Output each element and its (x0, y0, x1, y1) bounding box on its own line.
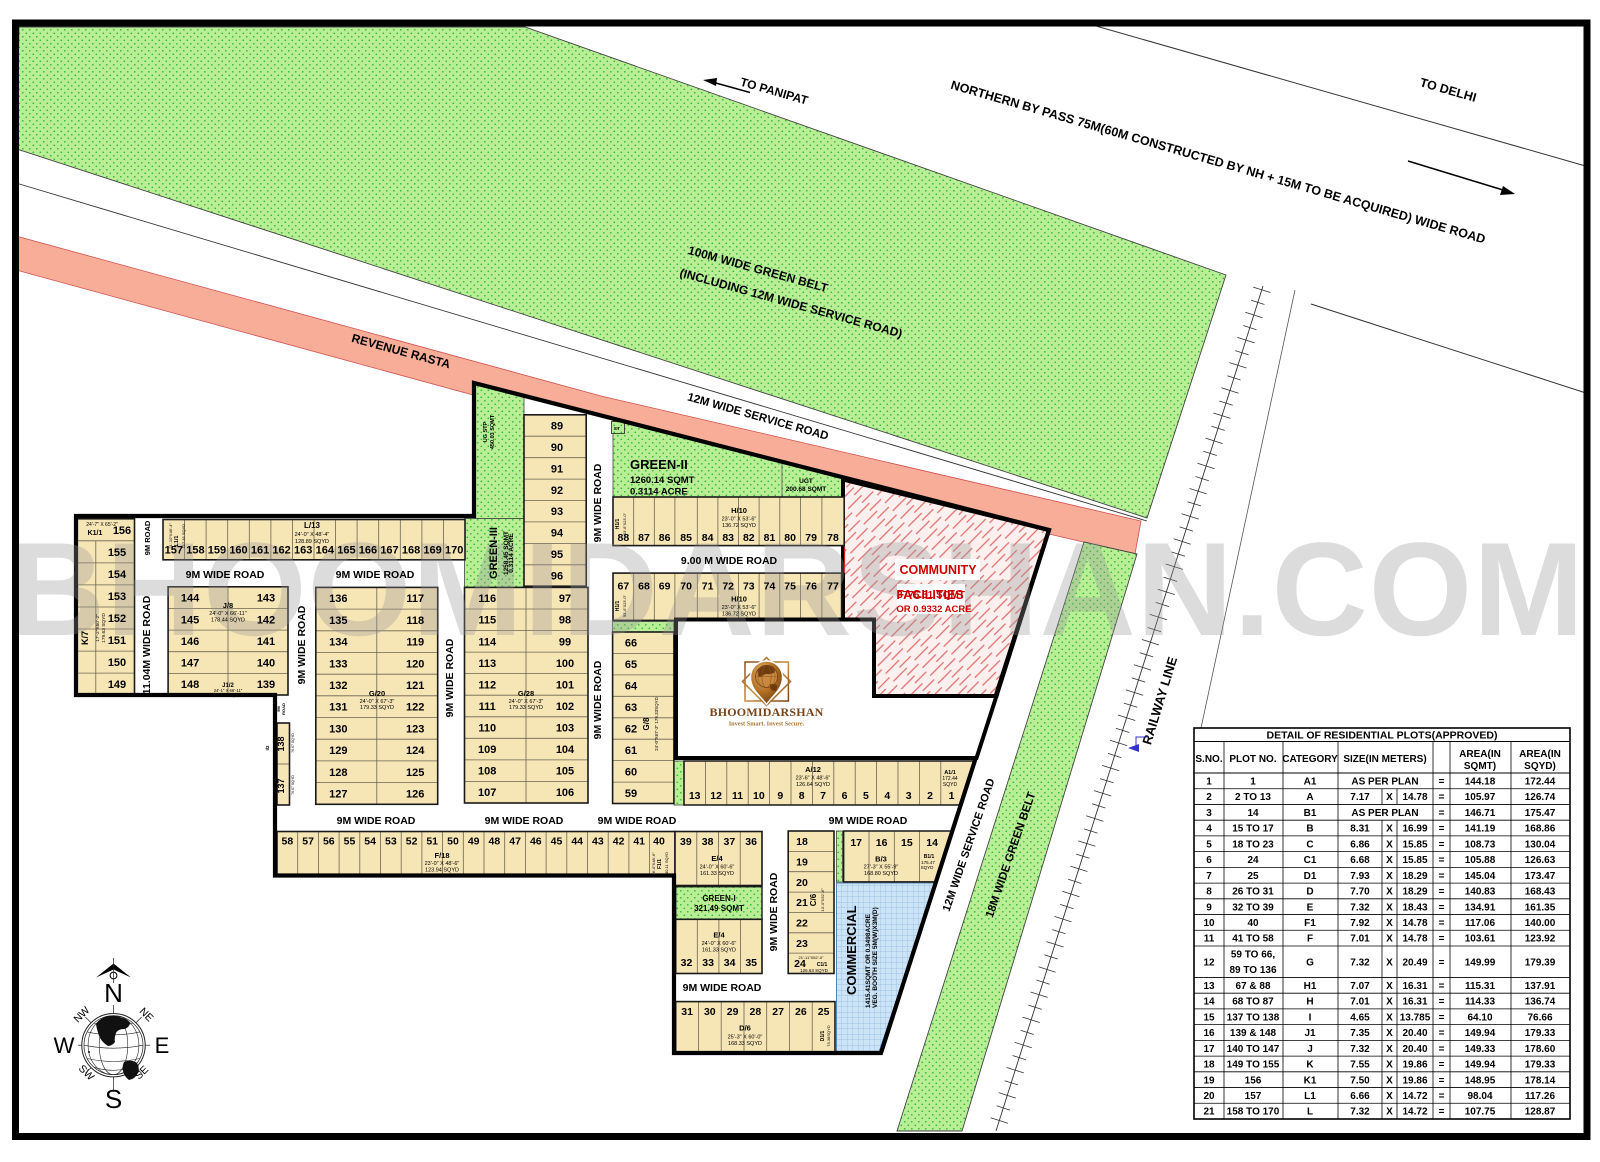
svg-text:144.18: 144.18 (1465, 777, 1496, 788)
svg-text:69: 69 (659, 581, 671, 593)
svg-text:179.06 SQYD: 179.06 SQYD (215, 693, 241, 698)
svg-text:C1: C1 (1304, 855, 1317, 866)
svg-text:115: 115 (478, 615, 496, 627)
svg-text:4.65: 4.65 (1350, 1012, 1370, 1023)
svg-text:ROAD: ROAD (281, 703, 286, 715)
svg-text:X: X (1386, 1060, 1393, 1071)
svg-text:9M WIDE ROAD: 9M WIDE ROAD (186, 569, 265, 581)
svg-text:E: E (1307, 902, 1314, 913)
svg-text:122: 122 (406, 702, 424, 714)
svg-text:81: 81 (764, 532, 776, 544)
svg-text:76.67 SQYD: 76.67 SQYD (291, 775, 295, 795)
svg-text:23'-6" X 48'-6": 23'-6" X 48'-6" (796, 776, 831, 782)
svg-text:X: X (1386, 1012, 1393, 1023)
svg-text:130: 130 (329, 723, 347, 735)
svg-text:32 TO 39: 32 TO 39 (1232, 902, 1274, 913)
svg-text:9M WIDE ROAD: 9M WIDE ROAD (683, 982, 762, 994)
svg-text:OR 0.9332 ACRE: OR 0.9332 ACRE (896, 604, 971, 615)
svg-text:0.3114 ACRE: 0.3114 ACRE (508, 533, 515, 573)
svg-text:131: 131 (329, 702, 347, 714)
svg-text:=: = (1439, 957, 1445, 968)
svg-text:26 TO 31: 26 TO 31 (1232, 887, 1274, 898)
svg-text:72: 72 (722, 581, 734, 593)
svg-text:157: 157 (1245, 1091, 1262, 1102)
svg-text:149.99: 149.99 (1465, 957, 1496, 968)
svg-text:53'-6"X23'-0": 53'-6"X23'-0" (623, 512, 627, 535)
svg-text:168.33 SQYD: 168.33 SQYD (728, 1041, 762, 1047)
svg-text:D/6: D/6 (739, 1024, 751, 1033)
svg-text:14: 14 (1203, 997, 1215, 1008)
svg-text:7.17: 7.17 (1350, 792, 1370, 803)
svg-text:140.83: 140.83 (1465, 887, 1496, 898)
svg-text:129: 129 (329, 745, 347, 757)
svg-text:6.66: 6.66 (1350, 1091, 1370, 1102)
svg-text:145.04: 145.04 (1465, 871, 1496, 882)
svg-text:CATEGORY: CATEGORY (1282, 754, 1338, 765)
svg-text:85: 85 (680, 532, 692, 544)
svg-text:H1/1: H1/1 (615, 601, 621, 612)
svg-text:C/6: C/6 (809, 893, 818, 906)
svg-text:75: 75 (784, 581, 796, 593)
svg-text:8.31: 8.31 (1350, 824, 1370, 835)
svg-text:19: 19 (1203, 1075, 1215, 1086)
svg-text:23'-0" X 48'-6": 23'-0" X 48'-6" (425, 861, 460, 867)
svg-text:132: 132 (329, 680, 347, 692)
svg-text:145: 145 (181, 614, 199, 626)
svg-text:162: 162 (272, 545, 290, 557)
svg-text:78: 78 (827, 532, 839, 544)
svg-text:102: 102 (556, 701, 574, 713)
svg-text:25: 25 (1247, 871, 1259, 882)
svg-text:B1: B1 (1304, 808, 1317, 819)
svg-text:7.01: 7.01 (1350, 997, 1370, 1008)
svg-text:149: 149 (108, 679, 126, 691)
svg-text:36: 36 (745, 836, 757, 848)
svg-text:73.38SQYD: 73.38SQYD (826, 1025, 831, 1046)
svg-text:F1: F1 (1304, 918, 1316, 929)
svg-text:321.49 SQMT: 321.49 SQMT (694, 904, 744, 913)
svg-text:=: = (1439, 918, 1445, 929)
svg-text:X: X (1386, 1107, 1393, 1118)
svg-text:139: 139 (257, 679, 275, 691)
svg-text:91: 91 (551, 463, 563, 475)
svg-text:108: 108 (478, 766, 496, 778)
svg-text:70: 70 (680, 581, 692, 593)
svg-text:J: J (1307, 1044, 1313, 1055)
svg-text:128.89 SQYD: 128.89 SQYD (295, 539, 329, 545)
svg-text:83: 83 (722, 532, 734, 544)
svg-text:X: X (1386, 1044, 1393, 1055)
svg-text:105: 105 (556, 766, 574, 778)
svg-text:G/8: G/8 (642, 717, 651, 730)
svg-text:123.92: 123.92 (1525, 934, 1556, 945)
svg-text:16: 16 (1203, 1028, 1215, 1039)
svg-text:144: 144 (181, 593, 200, 605)
svg-text:PLOT NO.: PLOT NO. (1229, 754, 1276, 765)
svg-text:COMMERCIAL: COMMERCIAL (844, 905, 859, 995)
svg-text:COMMUNITY: COMMUNITY (899, 563, 977, 577)
svg-text:X: X (1386, 981, 1393, 992)
svg-text:68 TO 87: 68 TO 87 (1232, 997, 1274, 1008)
svg-text:98: 98 (559, 615, 571, 627)
svg-text:63: 63 (625, 702, 637, 714)
svg-text:13: 13 (689, 790, 701, 802)
svg-text:11: 11 (732, 790, 743, 802)
svg-text:137 TO 138: 137 TO 138 (1227, 1012, 1280, 1023)
svg-text:17: 17 (850, 837, 862, 849)
svg-text:7.32: 7.32 (1350, 902, 1370, 913)
svg-text:D1: D1 (1304, 871, 1317, 882)
svg-text:2: 2 (1206, 792, 1212, 803)
svg-text:64.10: 64.10 (1467, 1012, 1492, 1023)
svg-text:148: 148 (181, 679, 199, 691)
svg-text:25: 25 (818, 1006, 830, 1018)
svg-text:=: = (1439, 839, 1445, 850)
svg-text:165: 165 (337, 545, 355, 557)
svg-text:149.33: 149.33 (1465, 1044, 1496, 1055)
svg-text:101: 101 (556, 679, 574, 691)
svg-text:111: 111 (479, 701, 496, 713)
svg-text:1: 1 (1206, 777, 1212, 788)
svg-text:I: I (1309, 1012, 1312, 1023)
svg-text:17'-2"X60'-2": 17'-2"X60'-2" (95, 614, 101, 642)
svg-text:104: 104 (556, 744, 575, 756)
svg-text:178.14: 178.14 (1525, 1075, 1556, 1086)
svg-text:9M WIDE ROAD: 9M WIDE ROAD (485, 815, 564, 827)
svg-text:149 TO 155: 149 TO 155 (1227, 1060, 1280, 1071)
svg-text:F: F (1307, 934, 1313, 945)
svg-text:H1/1: H1/1 (615, 519, 621, 530)
svg-text:18: 18 (796, 836, 808, 848)
svg-text:55: 55 (344, 836, 356, 848)
svg-text:53'-6"X23'-0": 53'-6"X23'-0" (623, 594, 627, 617)
svg-text:161.35: 161.35 (1525, 902, 1556, 913)
svg-text:W: W (54, 1033, 75, 1058)
svg-text:45: 45 (551, 836, 563, 848)
svg-text:X: X (1386, 957, 1393, 968)
svg-text:57: 57 (302, 836, 314, 848)
svg-text:114: 114 (478, 636, 497, 648)
svg-text:22: 22 (796, 918, 808, 930)
svg-text:16: 16 (876, 837, 888, 849)
svg-text:X: X (1386, 855, 1393, 866)
svg-text:5: 5 (863, 790, 869, 802)
svg-text:21'-10"X48'-4": 21'-10"X48'-4" (168, 523, 173, 549)
svg-text:115.31: 115.31 (1465, 981, 1495, 992)
svg-text:136: 136 (329, 593, 347, 605)
svg-text:7: 7 (1206, 871, 1212, 882)
svg-text:K1: K1 (1304, 1075, 1317, 1086)
svg-text:GREEN-II: GREEN-II (630, 457, 688, 472)
svg-text:94: 94 (551, 528, 564, 540)
svg-text:19.86: 19.86 (1402, 1075, 1427, 1086)
svg-text:130.04: 130.04 (1525, 839, 1556, 850)
svg-text:96: 96 (551, 571, 563, 583)
svg-text:7: 7 (820, 790, 826, 802)
svg-text:84: 84 (702, 532, 714, 544)
svg-text:24'-0" X 60'-6": 24'-0" X 60'-6" (702, 941, 737, 947)
svg-text:BHOOMIDARSHAN.COM: BHOOMIDARSHAN.COM (9, 516, 1585, 664)
svg-text:19: 19 (796, 857, 808, 869)
svg-text:117.35 SQYD: 117.35 SQYD (181, 524, 186, 548)
svg-text:B/3: B/3 (875, 855, 887, 864)
svg-text:100: 100 (556, 658, 574, 670)
svg-text:E/4: E/4 (711, 854, 723, 863)
svg-text:AREA(IN: AREA(IN (1519, 749, 1561, 760)
svg-text:16.31: 16.31 (1402, 981, 1427, 992)
svg-text:161.33 SQYD: 161.33 SQYD (700, 871, 734, 877)
svg-text:42: 42 (613, 836, 625, 848)
svg-text:108.73: 108.73 (1465, 839, 1496, 850)
svg-text:9M WIDE ROAD: 9M WIDE ROAD (337, 815, 416, 827)
svg-text:116: 116 (478, 593, 496, 605)
svg-text:117.06: 117.06 (1465, 918, 1495, 929)
svg-text:DETAIL OF RESIDENTIAL PLOTS(AP: DETAIL OF RESIDENTIAL PLOTS(APPROVED) (1266, 730, 1497, 742)
svg-text:E/4: E/4 (713, 931, 725, 940)
svg-text:37: 37 (724, 836, 736, 848)
svg-text:18 TO 23: 18 TO 23 (1232, 839, 1274, 850)
svg-text:156: 156 (1245, 1075, 1262, 1086)
svg-text:24'-0" X 48'-4": 24'-0" X 48'-4" (295, 532, 330, 538)
svg-text:X: X (1386, 1075, 1393, 1086)
svg-text:L: L (1307, 1107, 1313, 1118)
svg-text:137.91: 137.91 (1525, 981, 1556, 992)
svg-text:15: 15 (901, 837, 913, 849)
svg-text:=: = (1439, 777, 1445, 788)
svg-text:46: 46 (530, 836, 542, 848)
svg-text:137: 137 (276, 778, 286, 793)
svg-text:79: 79 (805, 532, 817, 544)
svg-text:14.78: 14.78 (1402, 918, 1427, 929)
svg-text:8: 8 (1206, 887, 1212, 898)
svg-text:28: 28 (750, 1006, 762, 1018)
svg-text:24'-0" X 66'-11": 24'-0" X 66'-11" (209, 611, 246, 617)
svg-text:14.78: 14.78 (1402, 792, 1427, 803)
svg-text:450.03 SQMT: 450.03 SQMT (490, 414, 496, 449)
svg-text:149.94: 149.94 (1465, 1028, 1496, 1039)
svg-text:5: 5 (1206, 839, 1212, 850)
svg-text:103.61: 103.61 (1465, 934, 1496, 945)
svg-text:126: 126 (406, 789, 424, 801)
svg-text:24: 24 (1247, 855, 1259, 866)
svg-text:X: X (1386, 934, 1393, 945)
svg-text:2 TO 13: 2 TO 13 (1235, 792, 1271, 803)
svg-text:77: 77 (827, 581, 839, 593)
svg-text:53: 53 (385, 836, 397, 848)
svg-text:31: 31 (681, 1006, 693, 1018)
svg-text:32: 32 (681, 957, 693, 969)
svg-text:I/2: I/2 (265, 745, 270, 751)
svg-text:179.33 SQYD: 179.33 SQYD (509, 705, 543, 711)
svg-text:49: 49 (468, 836, 480, 848)
svg-text:87: 87 (638, 532, 650, 544)
svg-text:179.33: 179.33 (1525, 1028, 1556, 1039)
svg-text:67 & 88: 67 & 88 (1235, 981, 1270, 992)
svg-text:H1: H1 (1304, 981, 1317, 992)
svg-text:107.75: 107.75 (1465, 1107, 1496, 1118)
svg-text:G/28: G/28 (518, 689, 534, 698)
svg-text:117: 117 (406, 593, 424, 605)
svg-text:4: 4 (884, 790, 890, 802)
svg-text:=: = (1439, 808, 1445, 819)
svg-text:B: B (1306, 824, 1313, 835)
svg-text:3: 3 (906, 790, 912, 802)
svg-text:SIZE(IN METERS): SIZE(IN METERS) (1343, 754, 1426, 765)
svg-text:159: 159 (208, 545, 226, 557)
svg-text:J/8: J/8 (223, 601, 233, 610)
svg-text:50: 50 (447, 836, 459, 848)
svg-text:=: = (1439, 887, 1445, 898)
svg-text:40: 40 (1247, 918, 1259, 929)
svg-text:X: X (1386, 902, 1393, 913)
svg-text:SQYD: SQYD (943, 782, 958, 788)
svg-text:L1: L1 (1304, 1091, 1316, 1102)
svg-text:173.47: 173.47 (1525, 871, 1556, 882)
svg-text:K/7: K/7 (80, 631, 90, 645)
svg-text:170: 170 (445, 545, 463, 557)
svg-text:16.31: 16.31 (1402, 997, 1427, 1008)
svg-text:120: 120 (406, 658, 424, 670)
svg-text:K1/1: K1/1 (88, 530, 103, 537)
svg-text:S.NO.: S.NO. (1195, 754, 1222, 765)
svg-text:105.88: 105.88 (1465, 855, 1496, 866)
svg-text:18.29: 18.29 (1402, 887, 1427, 898)
svg-text:158 TO 170: 158 TO 170 (1227, 1107, 1280, 1118)
svg-text:7.50: 7.50 (1350, 1075, 1370, 1086)
svg-text:93: 93 (551, 506, 563, 518)
svg-text:=: = (1439, 1044, 1445, 1055)
svg-text:1260.14 SQMT: 1260.14 SQMT (630, 475, 695, 486)
svg-text:6: 6 (1206, 855, 1212, 866)
svg-text:135: 135 (329, 615, 347, 627)
svg-text:126.63 SQYD: 126.63 SQYD (800, 968, 829, 973)
svg-text:62: 62 (625, 724, 637, 736)
svg-text:140.11 SQYD: 140.11 SQYD (664, 852, 669, 876)
svg-text:11: 11 (1204, 934, 1215, 945)
svg-text:126.64 SQYD: 126.64 SQYD (796, 782, 830, 788)
svg-text:166: 166 (359, 545, 377, 557)
svg-text:10: 10 (753, 790, 765, 802)
svg-text:148.95: 148.95 (1465, 1075, 1496, 1086)
svg-text:146: 146 (181, 636, 199, 648)
svg-text:19.86: 19.86 (1402, 1060, 1427, 1071)
svg-text:60: 60 (625, 766, 637, 778)
svg-text:7.07: 7.07 (1350, 981, 1370, 992)
svg-text:=: = (1439, 1028, 1445, 1039)
svg-text:51: 51 (426, 836, 438, 848)
svg-text:13.785: 13.785 (1400, 1012, 1431, 1023)
svg-text:136.74: 136.74 (1525, 997, 1556, 1008)
svg-text:7.32: 7.32 (1350, 1044, 1370, 1055)
svg-text:179.63 SQYD: 179.63 SQYD (101, 613, 107, 643)
svg-text:9M WIDE ROAD: 9M WIDE ROAD (768, 872, 780, 951)
svg-text:BHOOMIDARSHAN: BHOOMIDARSHAN (710, 705, 824, 719)
svg-text:147: 147 (181, 658, 199, 670)
svg-text:X: X (1386, 1028, 1393, 1039)
svg-text:163: 163 (294, 545, 312, 557)
svg-text:89: 89 (551, 421, 563, 433)
svg-text:15 TO 17: 15 TO 17 (1232, 824, 1274, 835)
svg-text:86: 86 (659, 532, 671, 544)
svg-text:14.78: 14.78 (1402, 934, 1427, 945)
svg-text:56: 56 (323, 836, 335, 848)
svg-text:128: 128 (329, 767, 347, 779)
svg-text:134: 134 (329, 637, 348, 649)
svg-text:L/13: L/13 (304, 521, 321, 530)
svg-text:136.72 SQYD: 136.72 SQYD (722, 612, 756, 618)
svg-text:=: = (1439, 855, 1445, 866)
svg-text:133: 133 (329, 658, 347, 670)
svg-text:30: 30 (704, 1006, 716, 1018)
svg-text:168.43: 168.43 (1525, 887, 1556, 898)
svg-text:6.86: 6.86 (1350, 839, 1370, 850)
svg-text:40: 40 (653, 836, 665, 848)
svg-text:98.04: 98.04 (1467, 1091, 1492, 1102)
svg-text:G: G (1306, 957, 1314, 968)
svg-text:G/20: G/20 (369, 689, 385, 698)
svg-text:152: 152 (108, 613, 126, 625)
svg-text:112: 112 (478, 679, 496, 691)
svg-text:H/10: H/10 (731, 595, 747, 604)
svg-text:8: 8 (799, 790, 805, 802)
svg-text:7.70: 7.70 (1350, 887, 1370, 898)
svg-text:164: 164 (316, 545, 335, 557)
svg-text:1: 1 (949, 790, 955, 802)
svg-text:1415.41SQMT OR 0.3498ACRE: 1415.41SQMT OR 0.3498ACRE (865, 913, 872, 1008)
svg-text:149.94: 149.94 (1465, 1060, 1496, 1071)
svg-text:76.67 SQYD: 76.67 SQYD (291, 733, 295, 753)
svg-text:99: 99 (559, 636, 571, 648)
svg-text:110: 110 (478, 723, 496, 735)
svg-text:15: 15 (1203, 1012, 1215, 1023)
svg-text:150: 150 (108, 657, 126, 669)
svg-text:172.44: 172.44 (1525, 777, 1556, 788)
svg-text:168.80 SQYD: 168.80 SQYD (864, 871, 898, 877)
svg-text:9M WIDE ROAD: 9M WIDE ROAD (336, 569, 415, 581)
svg-text:=: = (1439, 981, 1445, 992)
svg-text:24'-0"X67'-3" 179.33SQYD: 24'-0"X67'-3" 179.33SQYD (654, 696, 659, 750)
svg-text:9M WIDE ROAD: 9M WIDE ROAD (592, 463, 604, 542)
svg-text:24'-7" X 65'-2": 24'-7" X 65'-2" (86, 522, 118, 528)
svg-text:9M WIDE ROAD: 9M WIDE ROAD (829, 815, 908, 827)
svg-text:126.63: 126.63 (1525, 855, 1556, 866)
svg-text:Invest Smart. Invest Secure.: Invest Smart. Invest Secure. (729, 721, 805, 728)
svg-text:=: = (1439, 1075, 1445, 1086)
svg-text:76.66: 76.66 (1527, 1012, 1552, 1023)
svg-text:F/18: F/18 (434, 851, 449, 860)
svg-text:18.43: 18.43 (1402, 902, 1427, 913)
svg-text:74: 74 (764, 581, 776, 593)
svg-text:179.39: 179.39 (1525, 957, 1556, 968)
svg-text:9M WIDE ROAD: 9M WIDE ROAD (444, 638, 456, 717)
svg-text:SQMT): SQMT) (1464, 761, 1496, 772)
svg-text:126.74: 126.74 (1525, 792, 1556, 803)
svg-text:A: A (1306, 792, 1313, 803)
svg-text:154: 154 (108, 569, 127, 581)
svg-text:113: 113 (478, 658, 496, 670)
svg-text:=: = (1439, 1107, 1445, 1118)
svg-text:=: = (1439, 1060, 1445, 1071)
svg-text:107: 107 (478, 787, 496, 799)
svg-text:7.93: 7.93 (1350, 871, 1370, 882)
svg-text:24'-0" X 60'-6": 24'-0" X 60'-6" (700, 865, 735, 871)
svg-text:141.19: 141.19 (1465, 824, 1496, 835)
svg-text:16.99: 16.99 (1402, 824, 1427, 835)
svg-text:C: C (1306, 839, 1313, 850)
svg-text:18: 18 (1203, 1060, 1215, 1071)
svg-text:X: X (1386, 918, 1393, 929)
svg-text:=: = (1439, 871, 1445, 882)
